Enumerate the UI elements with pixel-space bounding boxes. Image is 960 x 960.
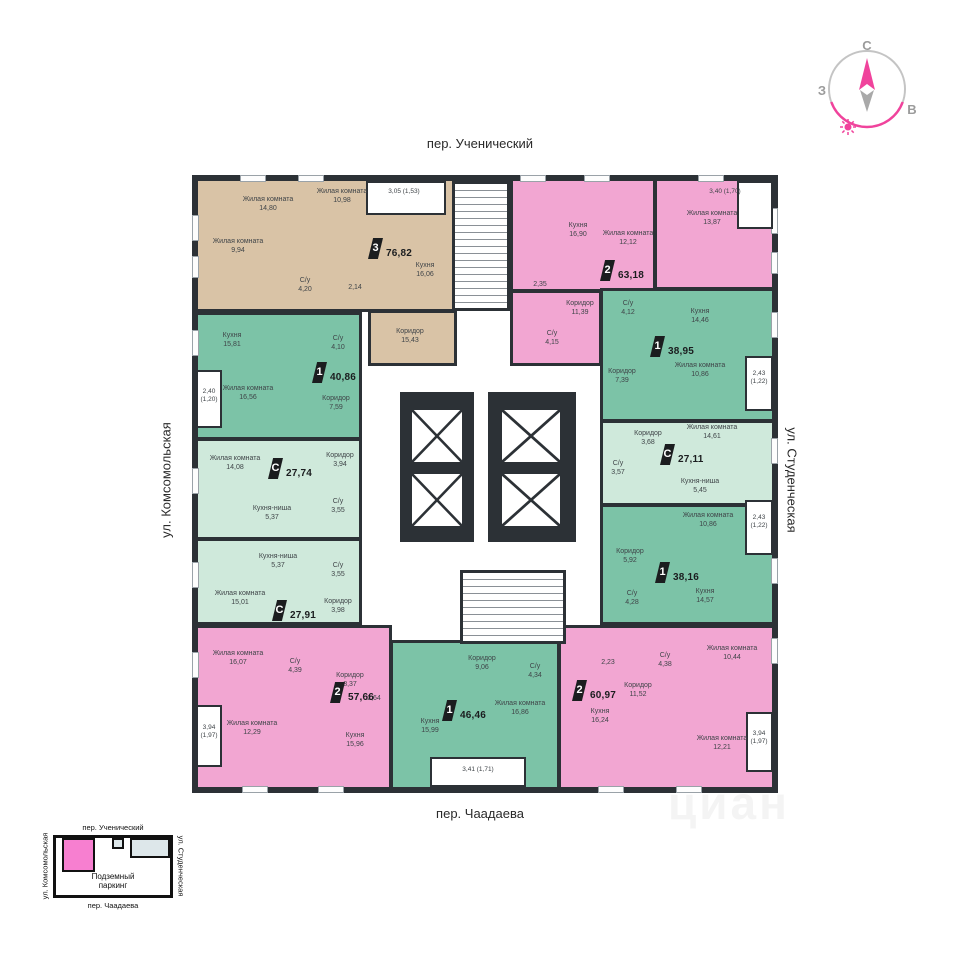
apartment-3room-76-82-corridor[interactable] [368,310,457,366]
apartment-badge: 146,46 [442,700,486,721]
apartment-badge: 138,95 [650,336,694,357]
legend-street-right: ул. Студенческая [177,836,186,897]
window [598,786,624,793]
apartment-type: С [268,458,283,479]
window [771,558,778,584]
balcony [366,181,446,215]
apartment-type: 1 [650,336,665,357]
compass-east: В [907,102,916,117]
apartment-total-area: 76,82 [386,248,412,259]
apartment-total-area: 27,74 [286,468,312,479]
legend-street-top: пер. Ученический [82,823,143,832]
floor-plan: пер. Ученический пер. Чаадаева ул. Комсо… [0,0,960,960]
window [698,175,724,182]
watermark: циан [668,776,790,830]
legend-street-bottom: пер. Чаадаева [88,901,139,910]
apartment-type: С [272,600,287,621]
elevator-icon [410,472,464,528]
window [520,175,546,182]
apartment-total-area: 63,18 [618,270,644,281]
window [318,786,344,793]
balcony-area-label: 3,94 (1,97) [745,730,773,746]
window [771,252,778,274]
apartment-studio-27-74[interactable] [195,438,362,540]
apartment-badge: 263,18 [600,260,644,281]
window [192,652,199,678]
staircase-bottom [460,570,566,644]
window [676,786,702,793]
apartment-2room-63-18-hall[interactable] [510,290,602,366]
street-label-bottom: пер. Чаадаева [436,806,524,821]
apartment-badge: С27,91 [272,600,316,621]
staircase-top [452,181,510,311]
apartment-badge: 376,82 [368,238,412,259]
legend-other-building [130,838,170,858]
window [771,312,778,338]
window [298,175,324,182]
balcony-area-label: 2,40 (1,20) [195,388,223,404]
apartment-badge: С27,11 [660,444,703,465]
apartment-total-area: 38,95 [668,346,694,357]
elevator-icon [410,408,464,464]
window [192,562,199,588]
apartment-total-area: 60,97 [590,690,616,701]
apartment-type: 2 [600,260,615,281]
apartment-type: С [660,444,675,465]
window [242,786,268,793]
apartment-total-area: 38,16 [673,572,699,583]
window [192,330,199,356]
apartment-badge: С27,74 [268,458,312,479]
window [240,175,266,182]
balcony-area-label: 3,94 (1,97) [195,724,223,740]
street-label-left: ул. Комсомольская [159,422,174,538]
apartment-type: 1 [312,362,327,383]
apartment-badge: 138,16 [655,562,699,583]
compass-west: З [818,83,826,98]
apartment-type: 3 [368,238,383,259]
legend-current-building[interactable] [62,838,95,872]
window [771,438,778,464]
elevator-icon [500,408,562,464]
apartment-badge: 257,66 [330,682,374,703]
legend-street-left: ул. Комсомольская [41,833,50,900]
apartment-2room-57-66[interactable] [195,625,392,790]
window [771,638,778,664]
apartment-total-area: 27,91 [290,610,316,621]
balcony-area-label: 2,43 (1,22) [745,370,773,386]
street-label-top: пер. Ученический [427,136,533,151]
apartment-badge: 260,97 [572,680,616,701]
legend-parking-label: Подземный паркинг [77,872,149,890]
elevator-icon [500,472,562,528]
apartment-total-area: 57,66 [348,692,374,703]
compass-north: С [862,38,872,53]
apartment-total-area: 27,11 [678,454,703,465]
apartment-type: 1 [442,700,457,721]
balcony-area-label: 3,41 (1,71) [462,766,493,774]
window [192,468,199,494]
window [584,175,610,182]
balcony-area-label: 3,05 (1,53) [388,188,419,196]
window [192,215,199,241]
window [192,256,199,278]
balcony-area-label: 2,43 (1,22) [745,514,773,530]
balcony-area-label: 3,40 (1,70) [709,188,740,196]
apartment-total-area: 40,86 [330,372,356,383]
apartment-type: 1 [655,562,670,583]
legend-other-building [112,838,124,849]
apartment-type: 2 [330,682,345,703]
apartment-total-area: 46,46 [460,710,486,721]
compass-rose-icon: С З В [812,32,922,147]
balcony [737,181,773,229]
street-label-right: ул. Студенческая [785,427,800,532]
apartment-badge: 140,86 [312,362,356,383]
apartment-type: 2 [572,680,587,701]
apartment-2room-60-97[interactable] [558,625,775,790]
